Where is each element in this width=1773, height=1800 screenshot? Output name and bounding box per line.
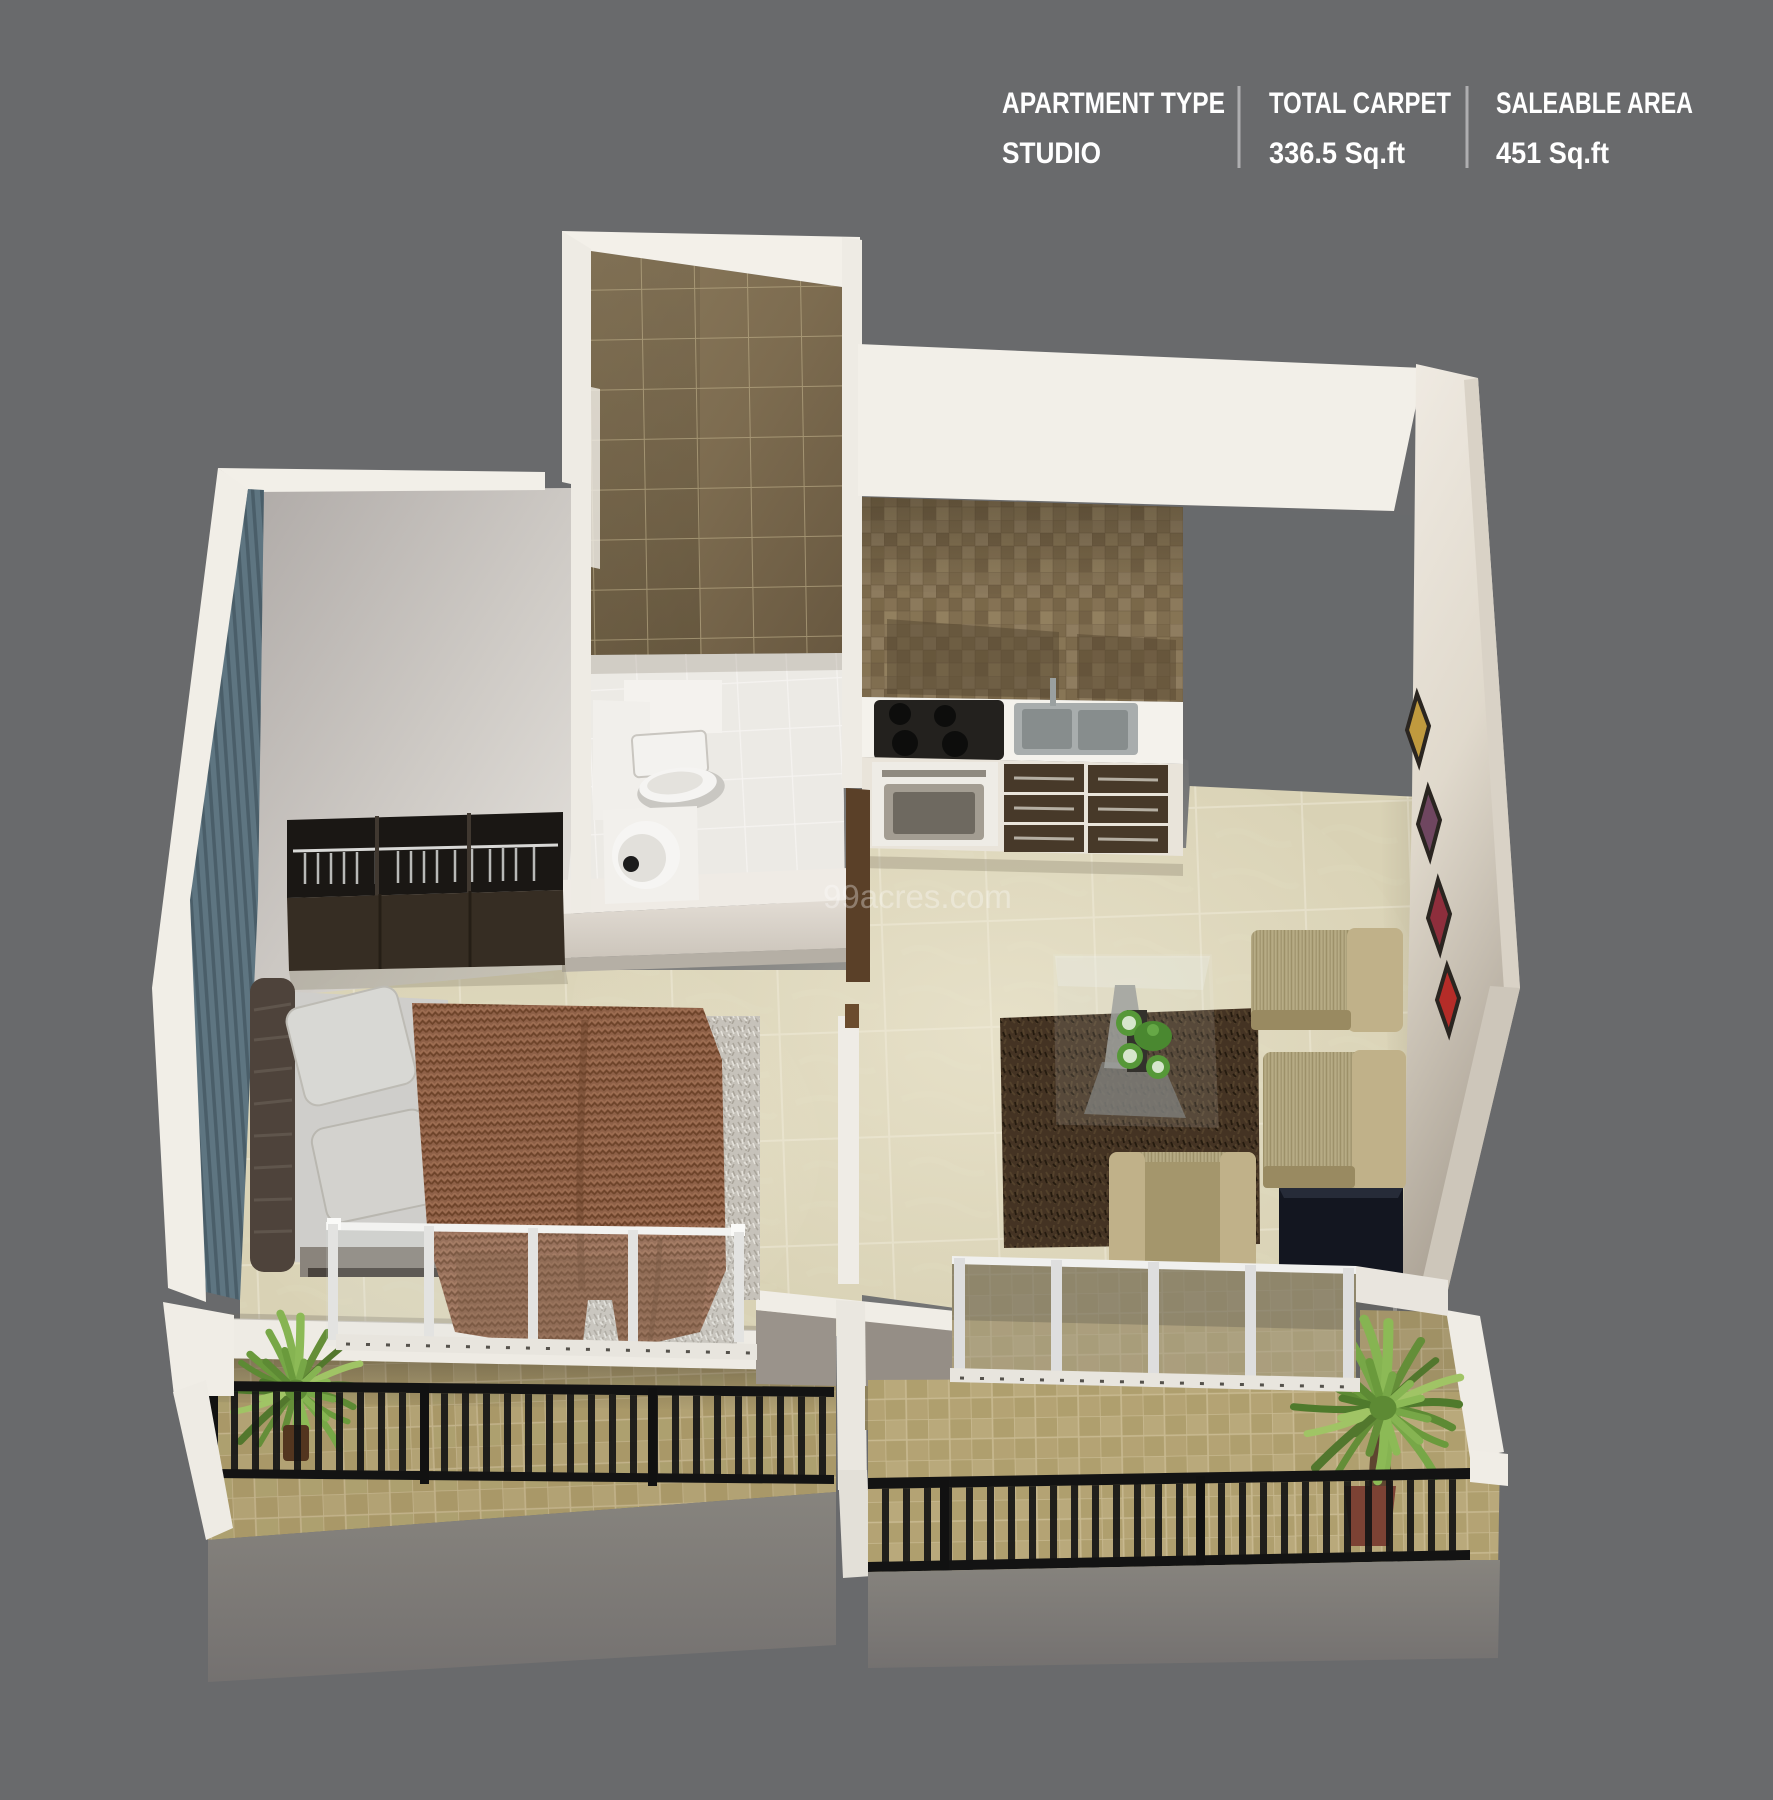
svg-text:SALEABLE AREA: SALEABLE AREA	[1496, 87, 1693, 120]
svg-text:TOTAL CARPET: TOTAL CARPET	[1269, 87, 1451, 120]
svg-text:STUDIO: STUDIO	[1002, 137, 1101, 170]
svg-text:336.5 Sq.ft: 336.5 Sq.ft	[1269, 137, 1405, 170]
svg-text:451 Sq.ft: 451 Sq.ft	[1496, 137, 1609, 170]
svg-text:APARTMENT TYPE: APARTMENT TYPE	[1002, 87, 1225, 120]
svg-text:99acres.com: 99acres.com	[823, 878, 1012, 915]
